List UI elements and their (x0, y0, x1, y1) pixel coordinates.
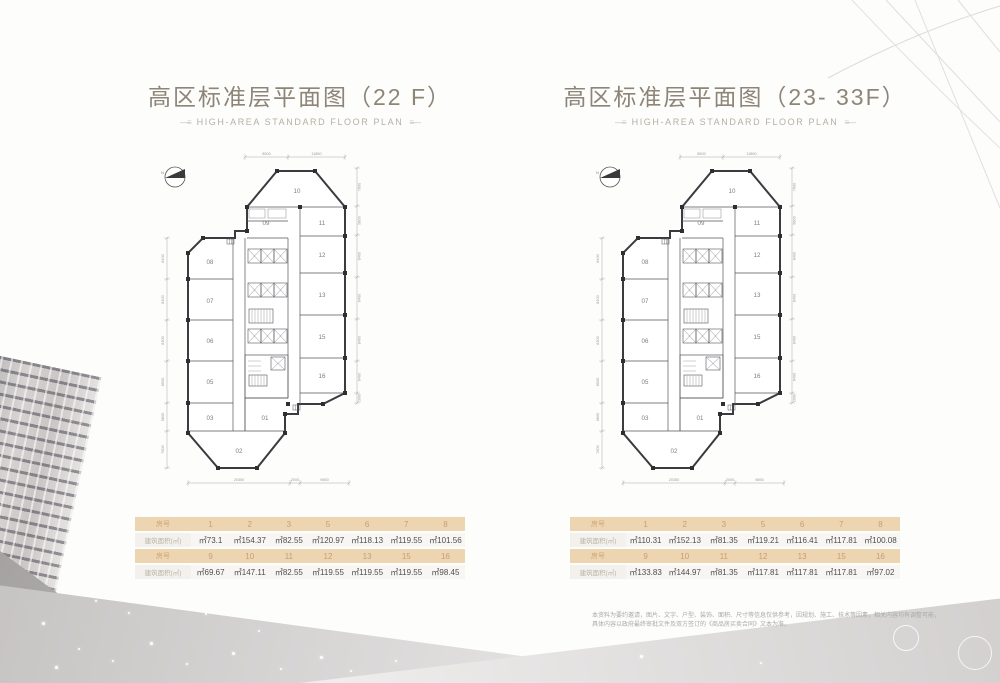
dim-label: 5800 (358, 216, 362, 224)
area-table-23-33f: 房号1235678建筑面积(㎡)㎡110.31㎡152.13㎡81.35㎡119… (570, 515, 900, 581)
table-row: 房号9101112131516 (570, 549, 900, 563)
column (690, 466, 694, 470)
area-table-22f: 房号1235678建筑面积(㎡)㎡73.1㎡154.37㎡82.55㎡120.9… (135, 515, 465, 581)
table-value-cell: ㎡117.81 (743, 565, 782, 579)
table-header-cell: 6 (348, 517, 387, 531)
column (255, 466, 259, 470)
table-header-cell: 15 (822, 549, 861, 563)
dim-label: 8400 (358, 252, 362, 260)
column (283, 412, 287, 416)
dim-label: 5800 (793, 216, 797, 224)
dim-label: 8500 (262, 152, 270, 156)
table-header-cell: 7 (822, 517, 861, 531)
dim-label: 8400 (358, 336, 362, 344)
dim-label: 11850 (746, 152, 756, 156)
table-row: 房号9101112131516 (135, 549, 465, 563)
north-label: N (596, 170, 599, 175)
room-label: 09 (698, 220, 705, 227)
table-header-cell: 2 (665, 517, 704, 531)
dim-label: 8400 (161, 295, 165, 303)
subtitle-row-right: —≡ HIGH-AREA STANDARD FLOOR PLAN ≡— (557, 117, 913, 127)
dim-label: 8400 (161, 254, 165, 262)
subtitle-deco-right: ≡— (844, 118, 855, 127)
room-label: 13 (754, 292, 761, 299)
column (245, 229, 249, 233)
column (621, 251, 625, 255)
table-row-label: 房号 (570, 549, 626, 563)
column (680, 205, 684, 209)
subtitle-deco-left: —≡ (615, 118, 626, 127)
panel-floor-22: 高区标准层平面图（22 F） —≡ HIGH-AREA STANDARD FLO… (122, 82, 478, 581)
dim-label: 7600 (793, 183, 797, 191)
dim-label: 5800 (596, 413, 600, 421)
dim-label: 7600 (161, 445, 165, 453)
disclaimer: 本资料为要约邀请，图片、文字、户型、装饰、面积、尺寸等信息仅供参考，因规划、施工… (592, 612, 952, 630)
dim-label: 8500 (596, 378, 600, 386)
table-row-label: 建筑面积(㎡) (135, 565, 191, 579)
table-header-cell: 6 (783, 517, 822, 531)
floor-plan-23-33f: N850011850203502000985076005800840084008… (580, 143, 890, 503)
column (778, 234, 782, 238)
room-label: 10 (729, 188, 736, 195)
room-label: 10 (294, 188, 301, 195)
column (680, 229, 684, 233)
dim-label: 8400 (793, 294, 797, 302)
table-header-cell: 12 (743, 549, 782, 563)
subtitle-row-left: —≡ HIGH-AREA STANDARD FLOOR PLAN ≡— (122, 117, 478, 127)
table-header-cell: 5 (308, 517, 347, 531)
room-label: 15 (754, 334, 761, 341)
table-header-cell: 12 (308, 549, 347, 563)
dim-label: 9850 (320, 478, 328, 482)
column (343, 205, 347, 209)
page-title-left: 高区标准层平面图（22 F） (122, 82, 478, 112)
column (343, 271, 347, 275)
room-label: 15 (319, 334, 326, 341)
table-value-cell: ㎡110.31 (626, 533, 665, 547)
table-header-cell: 11 (269, 549, 308, 563)
column (621, 401, 625, 405)
column (718, 412, 722, 416)
column (186, 401, 190, 405)
column (778, 391, 782, 395)
table-header-cell: 8 (426, 517, 465, 531)
column (778, 313, 782, 317)
column (313, 169, 317, 173)
column (286, 402, 290, 406)
table-row-label: 房号 (570, 517, 626, 531)
dim-label: 8300 (596, 336, 600, 344)
column (343, 234, 347, 238)
dim-label: 7600 (358, 183, 362, 191)
room-label: 07 (207, 298, 214, 305)
column (343, 313, 347, 317)
floor-plan-22f: N850011850203502000985076005800840084008… (145, 143, 455, 503)
column (778, 271, 782, 275)
table-value-cell: ㎡152.13 (665, 533, 704, 547)
table-header-cell: 5 (743, 517, 782, 531)
table-value-cell: ㎡117.81 (783, 565, 822, 579)
column (186, 251, 190, 255)
table-value-cell: ㎡100.08 (861, 533, 900, 547)
dim-label: 6400 (358, 373, 362, 381)
column (778, 356, 782, 360)
table-row: 建筑面积(㎡)㎡110.31㎡152.13㎡81.35㎡119.21㎡116.4… (570, 533, 900, 547)
building-outline (623, 171, 780, 468)
dim-label: 20350 (234, 478, 245, 482)
column (636, 236, 640, 240)
column (710, 169, 714, 173)
table-row-label: 建筑面积(㎡) (135, 533, 191, 547)
table-row: 建筑面积(㎡)㎡133.83㎡144.97㎡81.35㎡117.81㎡117.8… (570, 565, 900, 579)
table-header-cell: 13 (783, 549, 822, 563)
room-label: 05 (207, 379, 214, 386)
table-header-cell: 11 (704, 549, 743, 563)
room-label: 11 (319, 220, 326, 227)
table-value-cell: ㎡120.97 (308, 533, 347, 547)
room-label: 07 (642, 298, 649, 305)
table-value-cell: ㎡82.55 (269, 565, 308, 579)
table-header-cell: 13 (348, 549, 387, 563)
table-row-label: 房号 (135, 549, 191, 563)
dim-label: 2000 (726, 478, 734, 482)
table-value-cell: ㎡73.1 (191, 533, 230, 547)
table-row: 房号1235678 (570, 517, 900, 531)
dim-label: 5800 (161, 413, 165, 421)
room-label: 12 (754, 252, 761, 259)
table-header-cell: 9 (191, 549, 230, 563)
room-label: 03 (642, 415, 649, 422)
table-row: 建筑面积(㎡)㎡69.67㎡147.11㎡82.55㎡119.55㎡119.55… (135, 565, 465, 579)
column (283, 431, 287, 435)
table-value-cell: ㎡117.81 (822, 533, 861, 547)
table-value-cell: ㎡133.83 (626, 565, 665, 579)
table-value-cell: ㎡119.21 (743, 533, 782, 547)
table-value-cell: ㎡81.35 (704, 565, 743, 579)
dim-label: 11850 (311, 152, 321, 156)
table-value-cell: ㎡119.55 (387, 565, 426, 579)
table-row: 房号1235678 (135, 517, 465, 531)
column (621, 277, 625, 281)
dim-label: 8500 (697, 152, 705, 156)
column (201, 236, 205, 240)
table-value-cell: ㎡119.55 (387, 533, 426, 547)
table-row: 建筑面积(㎡)㎡73.1㎡154.37㎡82.55㎡120.97㎡118.13㎡… (135, 533, 465, 547)
column (186, 359, 190, 363)
table-value-cell: ㎡119.55 (308, 565, 347, 579)
room-label: 11 (754, 220, 761, 227)
disclaimer-line: 本资料为要约邀请，图片、文字、户型、装饰、面积、尺寸等信息仅供参考，因规划、施工… (592, 612, 952, 621)
table-header-cell: 3 (704, 517, 743, 531)
table-value-cell: ㎡81.35 (704, 533, 743, 547)
column (651, 466, 655, 470)
table-value-cell: ㎡98.45 (426, 565, 465, 579)
table-value-cell: ㎡119.55 (348, 565, 387, 579)
brochure-page: 高区标准层平面图（22 F） —≡ HIGH-AREA STANDARD FLO… (0, 0, 1000, 683)
room-label: 16 (319, 373, 326, 380)
table-header-cell: 16 (861, 549, 900, 563)
column (343, 391, 347, 395)
column (621, 318, 625, 322)
table-value-cell: ㎡69.67 (191, 565, 230, 579)
column (321, 402, 325, 406)
column (778, 205, 782, 209)
dim-label: 8400 (596, 295, 600, 303)
column (186, 318, 190, 322)
dim-label: 8400 (793, 252, 797, 260)
dim-label: 8400 (596, 254, 600, 262)
panel-floor-23-33: 高区标准层平面图（23- 33F） —≡ HIGH-AREA STANDARD … (557, 82, 913, 581)
table-header-cell: 10 (230, 549, 269, 563)
table-value-cell: ㎡82.55 (269, 533, 308, 547)
dim-label: 8300 (161, 336, 165, 344)
table-value-cell: ㎡116.41 (783, 533, 822, 547)
room-label: 08 (642, 259, 649, 266)
column (621, 431, 625, 435)
room-label: 09 (263, 220, 270, 227)
table-header-cell: 2 (230, 517, 269, 531)
column (186, 277, 190, 281)
room-label: 02 (236, 448, 243, 455)
room-label: 02 (671, 448, 678, 455)
table-value-cell: ㎡144.97 (665, 565, 704, 579)
dim-label: 2000 (291, 478, 299, 482)
table-header-cell: 3 (269, 517, 308, 531)
column (186, 431, 190, 435)
table-value-cell: ㎡101.56 (426, 533, 465, 547)
room-label: 05 (642, 379, 649, 386)
table-header-cell: 1 (626, 517, 665, 531)
page-title-right: 高区标准层平面图（23- 33F） (557, 82, 913, 112)
dim-label: 2000 (793, 394, 797, 402)
page-subtitle-right: HIGH-AREA STANDARD FLOOR PLAN (632, 117, 839, 127)
page-subtitle-left: HIGH-AREA STANDARD FLOOR PLAN (197, 117, 404, 127)
room-label: 12 (319, 252, 326, 259)
dim-label: 2000 (358, 394, 362, 402)
column (343, 356, 347, 360)
table-row-label: 房号 (135, 517, 191, 531)
room-label: 01 (262, 415, 269, 422)
dim-label: 8500 (161, 378, 165, 386)
table-header-cell: 9 (626, 549, 665, 563)
dim-label: 9850 (755, 478, 763, 482)
disclaimer-line: 具体内容以政府最终审批文件及双方签订的《商品房买卖合同》文本为准。 (592, 621, 952, 630)
column (718, 431, 722, 435)
table-row-label: 建筑面积(㎡) (570, 565, 626, 579)
table-value-cell: ㎡154.37 (230, 533, 269, 547)
table-value-cell: ㎡147.11 (230, 565, 269, 579)
table-header-cell: 15 (387, 549, 426, 563)
north-label: N (161, 170, 164, 175)
table-header-cell: 8 (861, 517, 900, 531)
column (245, 205, 249, 209)
dim-label: 20350 (669, 478, 680, 482)
table-header-cell: 10 (665, 549, 704, 563)
column (756, 402, 760, 406)
table-header-cell: 7 (387, 517, 426, 531)
room-label: 06 (642, 338, 649, 345)
room-label: 13 (319, 292, 326, 299)
column (621, 359, 625, 363)
dim-label: 7600 (596, 445, 600, 453)
table-value-cell: ㎡118.13 (348, 533, 387, 547)
table-header-cell: 16 (426, 549, 465, 563)
room-label: 08 (207, 259, 214, 266)
room-label: 01 (697, 415, 704, 422)
room-label: 16 (754, 373, 761, 380)
dim-label: 8400 (793, 336, 797, 344)
subtitle-deco-left: —≡ (180, 118, 191, 127)
table-value-cell: ㎡97.02 (861, 565, 900, 579)
column (216, 466, 220, 470)
dim-label: 6400 (793, 373, 797, 381)
column (298, 205, 302, 209)
dim-label: 8400 (358, 294, 362, 302)
subtitle-deco-right: ≡— (409, 118, 420, 127)
table-value-cell: ㎡117.81 (822, 565, 861, 579)
building-outline (188, 171, 345, 468)
column (733, 205, 737, 209)
room-label: 03 (207, 415, 214, 422)
column (721, 402, 725, 406)
column (275, 169, 279, 173)
room-label: 06 (207, 338, 214, 345)
table-header-cell: 1 (191, 517, 230, 531)
table-row-label: 建筑面积(㎡) (570, 533, 626, 547)
column (748, 169, 752, 173)
